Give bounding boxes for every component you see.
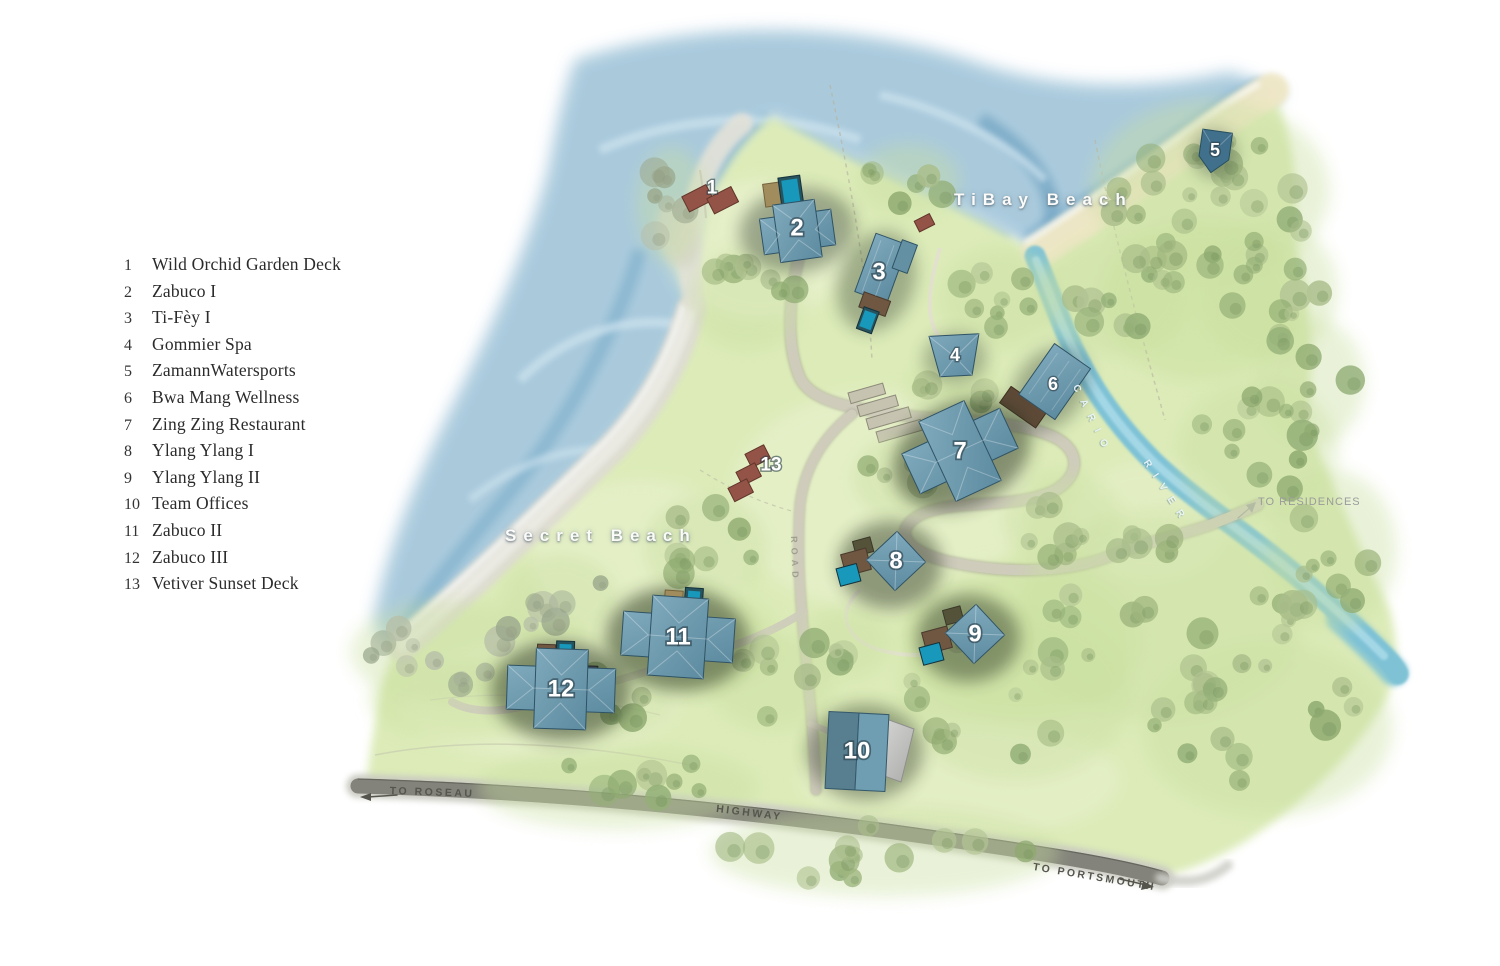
- map-marker-12: 12: [548, 676, 575, 703]
- map-marker-11: 11: [665, 624, 690, 651]
- map-marker-3: 3: [872, 259, 885, 286]
- legend-item-number: 13: [124, 576, 152, 594]
- legend-item-12: 12Zabuco III: [124, 547, 341, 574]
- legend-item-13: 13Vetiver Sunset Deck: [124, 573, 341, 600]
- map-marker-9: 9: [968, 621, 981, 648]
- legend-item-11: 11Zabuco II: [124, 520, 341, 547]
- map-marker-6: 6: [1048, 374, 1058, 394]
- legend-item-label: Ylang Ylang II: [152, 467, 260, 488]
- map-marker-1: 1: [707, 178, 718, 199]
- legend-item-number: 2: [124, 284, 152, 302]
- legend-item-label: Zabuco II: [152, 520, 222, 541]
- legend-item-number: 9: [124, 470, 152, 488]
- legend-item-label: Zabuco I: [152, 281, 216, 302]
- legend-item-number: 6: [124, 390, 152, 408]
- legend: 1Wild Orchid Garden Deck2Zabuco I3Ti-Fèy…: [124, 254, 341, 600]
- legend-item-label: Ylang Ylang I: [152, 440, 254, 461]
- resort-map-page: 12345678910111213 TiBay Beach Secret Bea…: [0, 0, 1500, 966]
- map-marker-2: 2: [790, 215, 803, 242]
- legend-item-label: Bwa Mang Wellness: [152, 387, 300, 408]
- legend-item-2: 2Zabuco I: [124, 281, 341, 308]
- legend-item-number: 1: [124, 257, 152, 275]
- legend-item-number: 4: [124, 337, 152, 355]
- legend-item-label: Zing Zing Restaurant: [152, 414, 306, 435]
- legend-item-number: 11: [124, 523, 152, 541]
- legend-item-8: 8Ylang Ylang I: [124, 440, 341, 467]
- legend-item-number: 12: [124, 550, 152, 568]
- legend-item-number: 3: [124, 310, 152, 328]
- legend-item-label: Vetiver Sunset Deck: [152, 573, 299, 594]
- legend-item-number: 7: [124, 417, 152, 435]
- legend-item-10: 10Team Offices: [124, 493, 341, 520]
- map-marker-4: 4: [950, 345, 960, 365]
- map-marker-8: 8: [889, 548, 902, 575]
- legend-item-number: 10: [124, 496, 152, 514]
- legend-item-label: Ti-Fèy I: [152, 307, 211, 328]
- legend-item-label: ZamannWatersports: [152, 360, 296, 381]
- legend-item-label: Zabuco III: [152, 547, 228, 568]
- legend-item-5: 5ZamannWatersports: [124, 360, 341, 387]
- map-marker-10: 10: [844, 738, 871, 765]
- legend-item-label: Gommier Spa: [152, 334, 252, 355]
- legend-item-1: 1Wild Orchid Garden Deck: [124, 254, 341, 281]
- legend-item-7: 7Zing Zing Restaurant: [124, 414, 341, 441]
- legend-item-label: Wild Orchid Garden Deck: [152, 254, 341, 275]
- legend-item-number: 5: [124, 363, 152, 381]
- legend-item-number: 8: [124, 443, 152, 461]
- legend-item-9: 9Ylang Ylang II: [124, 467, 341, 494]
- map-marker-13: 13: [760, 455, 781, 476]
- legend-item-3: 3Ti-Fèy I: [124, 307, 341, 334]
- legend-item-4: 4Gommier Spa: [124, 334, 341, 361]
- map-marker-7: 7: [953, 438, 966, 465]
- legend-item-6: 6Bwa Mang Wellness: [124, 387, 341, 414]
- map-marker-5: 5: [1210, 140, 1220, 160]
- legend-item-label: Team Offices: [152, 493, 249, 514]
